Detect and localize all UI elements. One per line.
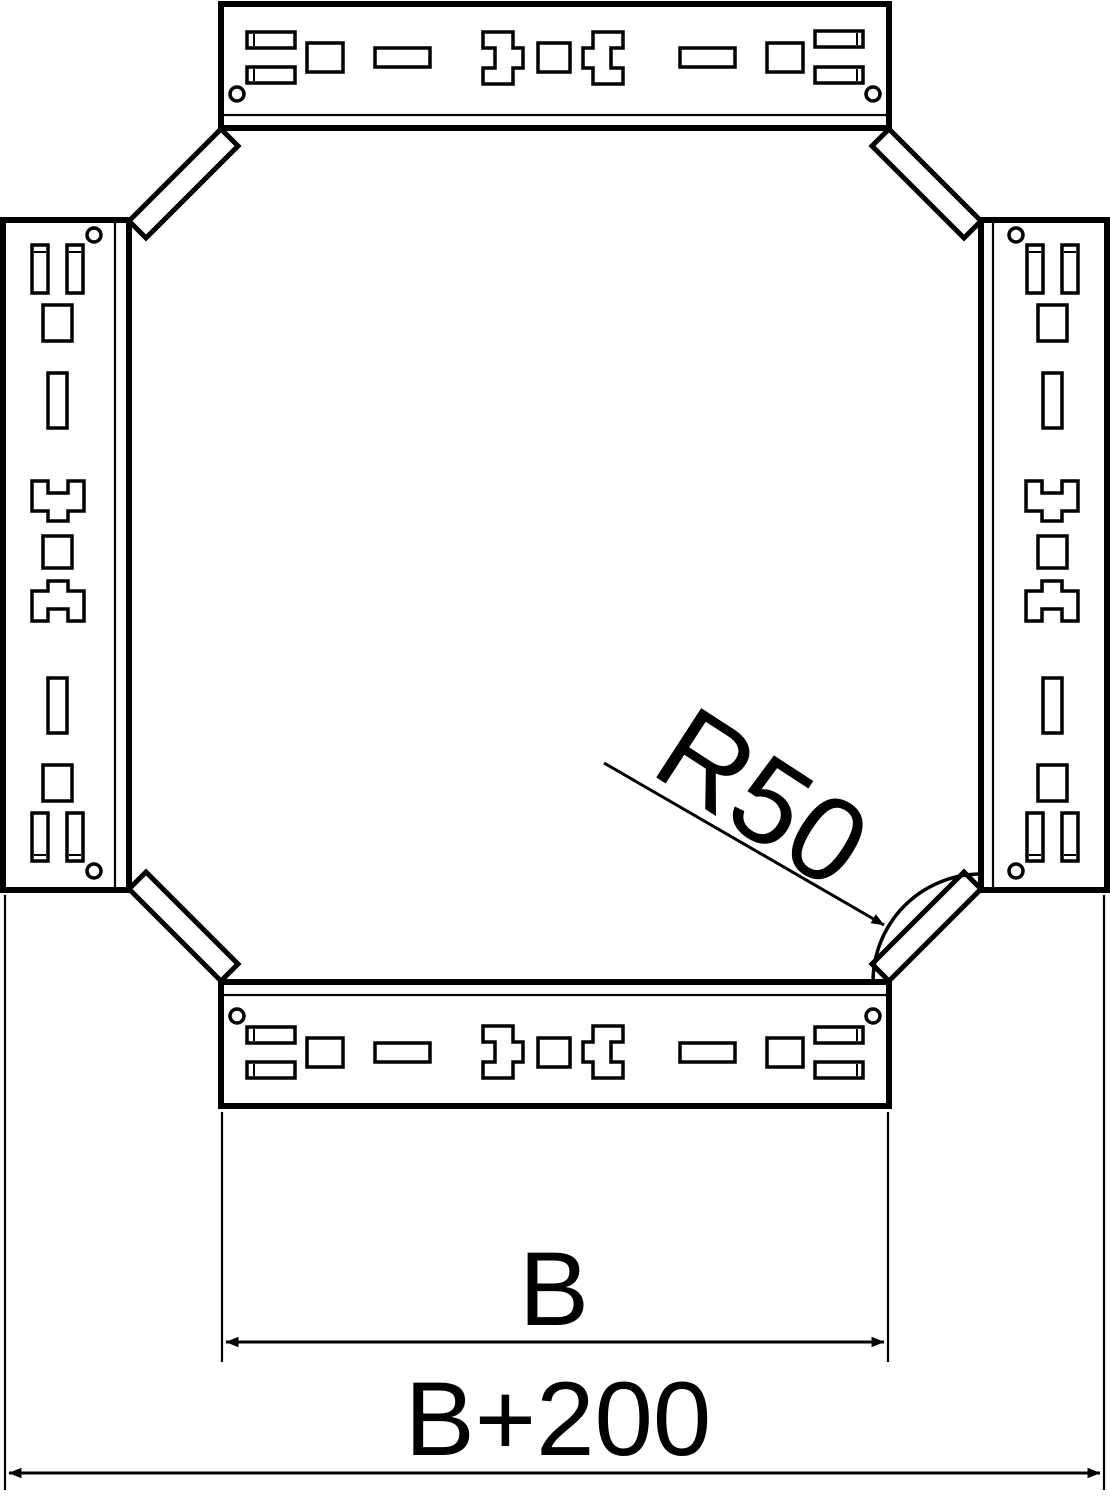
corner-connector-top-left — [129, 129, 238, 238]
right-rail-body — [981, 220, 1107, 890]
corner-connector-bottom-left — [129, 872, 238, 981]
top-rail-body — [221, 4, 889, 128]
corner-connector-top-right — [872, 129, 981, 238]
dim-b-label: B — [519, 1231, 589, 1348]
right-rail — [981, 220, 1107, 890]
left-rail — [3, 220, 129, 890]
r50-label: R50 — [634, 681, 892, 913]
bottom-rail-body — [221, 982, 889, 1106]
r50-annotation: R50 — [604, 681, 891, 925]
bottom-rail — [221, 982, 889, 1106]
dim-b200-label: B+200 — [405, 1361, 712, 1478]
cable-tray-cross-technical-drawing: R50 B B+200 — [0, 0, 1110, 1500]
top-rail — [221, 4, 889, 128]
left-rail-body — [3, 220, 129, 890]
drawing-canvas: R50 B B+200 — [0, 0, 1110, 1500]
dimension-b: B — [222, 1112, 888, 1362]
